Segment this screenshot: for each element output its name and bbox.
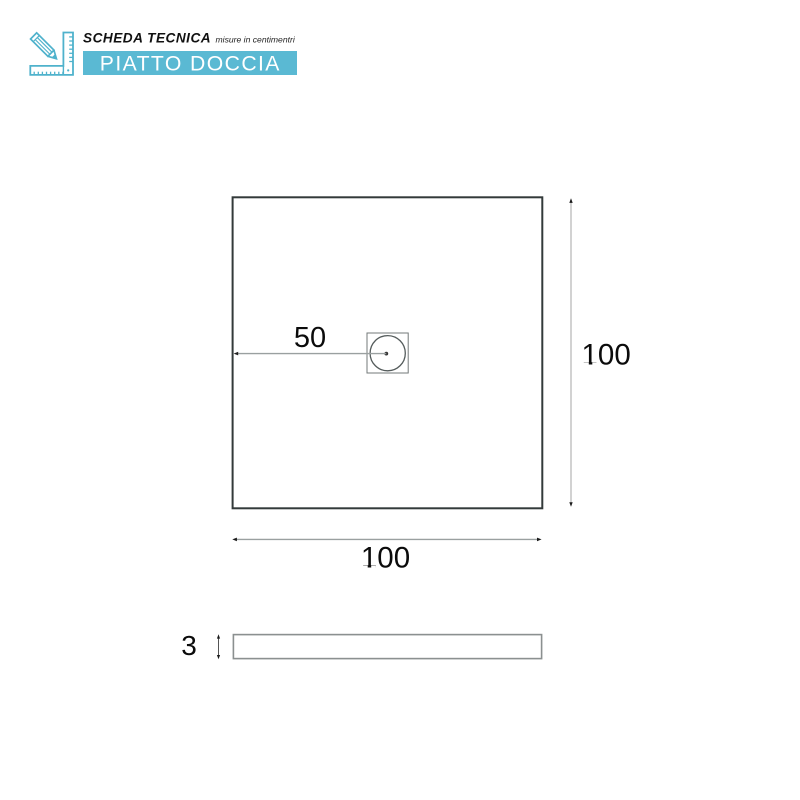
svg-text:100: 100 — [361, 542, 410, 575]
svg-text:misure in centimentri: misure in centimentri — [216, 35, 296, 45]
svg-text:SCHEDA TECNICA: SCHEDA TECNICA — [83, 31, 211, 46]
svg-text:PIATTO DOCCIA: PIATTO DOCCIA — [100, 53, 281, 76]
svg-text:50: 50 — [294, 322, 326, 354]
svg-text:3: 3 — [181, 630, 197, 661]
svg-text:100: 100 — [582, 339, 631, 372]
